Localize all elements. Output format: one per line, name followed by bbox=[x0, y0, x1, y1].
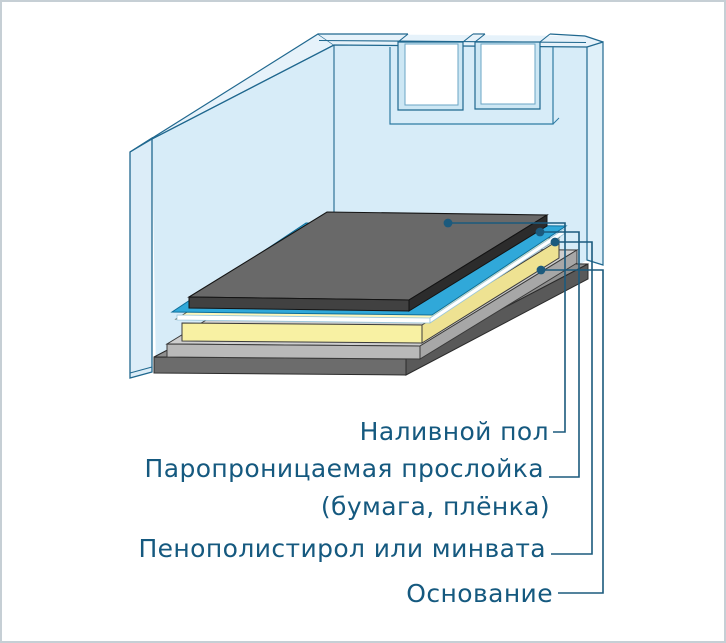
label-vapor-layer-line1: Паропроницаемая прослойка bbox=[145, 454, 544, 484]
window-left-glass bbox=[405, 44, 458, 105]
base-slab-front-face bbox=[154, 357, 406, 375]
label-vapor-layer-line2: (бумага, плёнка) bbox=[321, 492, 550, 522]
window-right bbox=[475, 34, 550, 109]
insulation-front-face bbox=[182, 323, 422, 343]
leader-film-dot bbox=[536, 228, 545, 237]
label-base: Основание bbox=[406, 579, 553, 609]
label-insulation: Пенополистирол или минвата bbox=[138, 534, 546, 564]
window-left bbox=[398, 34, 473, 110]
left-wall-end-face bbox=[130, 138, 152, 378]
screed-front-face bbox=[167, 344, 420, 359]
leader-base-dot bbox=[537, 266, 546, 275]
floor-construction-figure: Наливной пол Паропроницаемая прослойка (… bbox=[0, 0, 726, 643]
window-right-glass bbox=[481, 44, 535, 104]
topcoat-front-face bbox=[189, 297, 409, 311]
leader-base-line bbox=[541, 270, 603, 593]
leader-topcoat-dot bbox=[444, 219, 453, 228]
label-self-leveling-floor: Наливной пол bbox=[360, 417, 549, 447]
wall-top-back-edge-segment bbox=[550, 34, 585, 36]
leader-insulation-dot bbox=[551, 238, 560, 247]
back-wall-right-edge-face bbox=[587, 42, 603, 265]
